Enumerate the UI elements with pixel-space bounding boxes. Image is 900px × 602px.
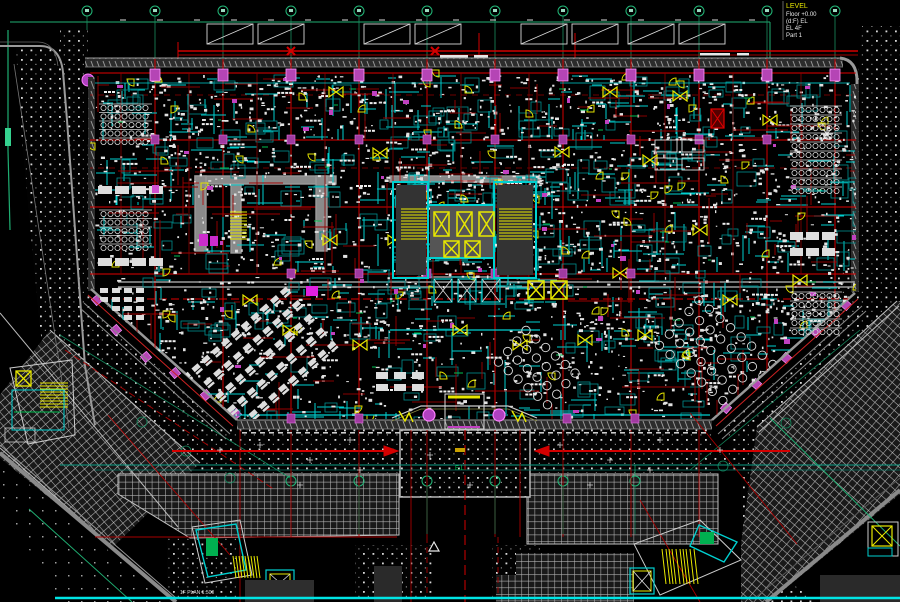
svg-text:E.L: E.L <box>455 466 465 472</box>
svg-text:(d:F) EL: (d:F) EL <box>786 19 808 25</box>
svg-text:EL 4F: EL 4F <box>786 26 802 32</box>
svg-text:1F PLAN 1:500: 1F PLAN 1:500 <box>180 590 214 596</box>
svg-text:Part 1: Part 1 <box>786 33 803 39</box>
svg-text:LEVEL: LEVEL <box>786 3 808 10</box>
svg-text:Floor +0.00: Floor +0.00 <box>786 12 817 18</box>
